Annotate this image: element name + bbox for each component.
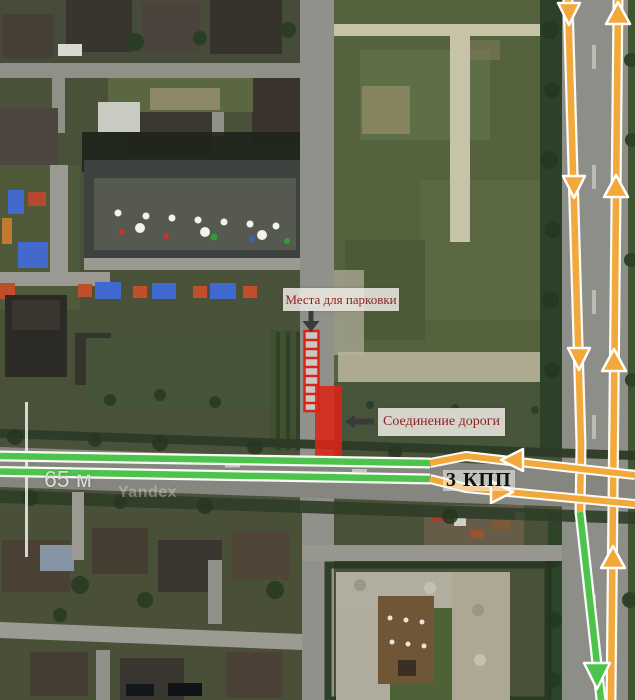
yandex-watermark-text: Yandex [118, 484, 177, 501]
road-connection-marking [315, 386, 342, 463]
parking-label: Места для парковки [283, 288, 399, 311]
road-connection-label: Соединение дороги [378, 408, 505, 436]
scale-bar [25, 402, 28, 557]
satellite-map-canvas[interactable]: Места для парковки Соединение дороги 3 К… [0, 0, 635, 700]
road-connection-label-text: Соединение дороги [383, 414, 500, 430]
parking-label-text: Места для парковки [285, 292, 396, 308]
satellite-map-image [0, 0, 635, 700]
scale-label: 65 м [44, 466, 92, 493]
yandex-watermark: Yandex [118, 484, 177, 502]
checkpoint-label: 3 КПП [443, 470, 515, 491]
scale-label-text: 65 м [44, 466, 92, 492]
checkpoint-label-text: 3 КПП [446, 469, 512, 491]
